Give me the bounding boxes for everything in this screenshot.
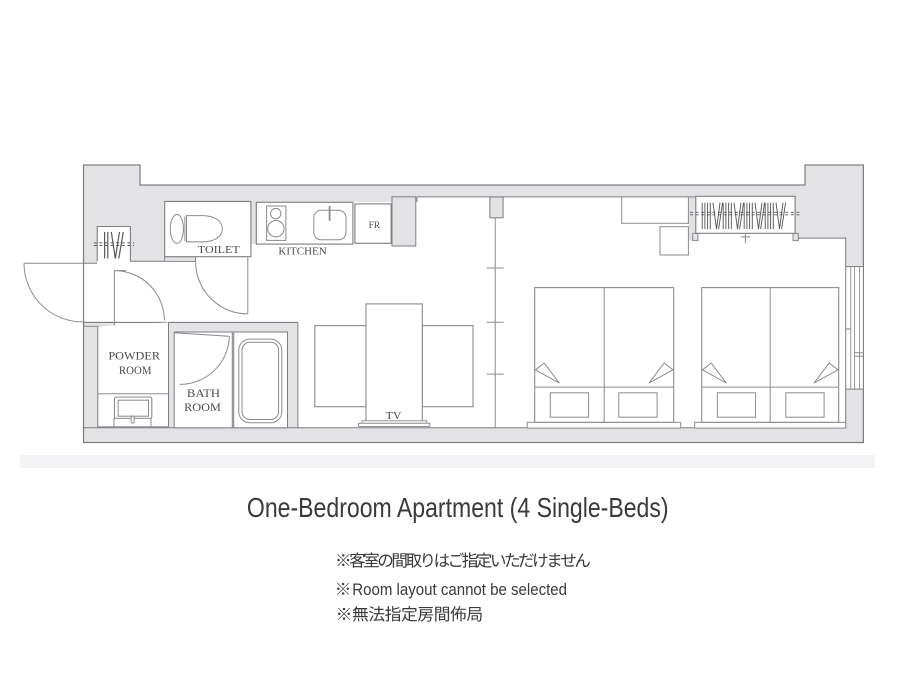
svg-text:POWDER: POWDER (108, 351, 160, 363)
svg-text:BATH: BATH (187, 388, 220, 400)
svg-text:One-Bedroom Apartment (4 Singl: One-Bedroom Apartment (4 Single-Beds) (247, 492, 669, 523)
svg-text:ROOM: ROOM (184, 402, 221, 414)
svg-text:KITCHEN: KITCHEN (278, 245, 326, 257)
svg-text:FR: FR (369, 221, 381, 231)
svg-text:ROOM: ROOM (119, 365, 152, 377)
svg-text:Room layout cannot be selected: Room layout cannot be selected (352, 580, 567, 599)
svg-text:TV: TV (386, 410, 402, 422)
svg-text:TOILET: TOILET (198, 244, 240, 256)
